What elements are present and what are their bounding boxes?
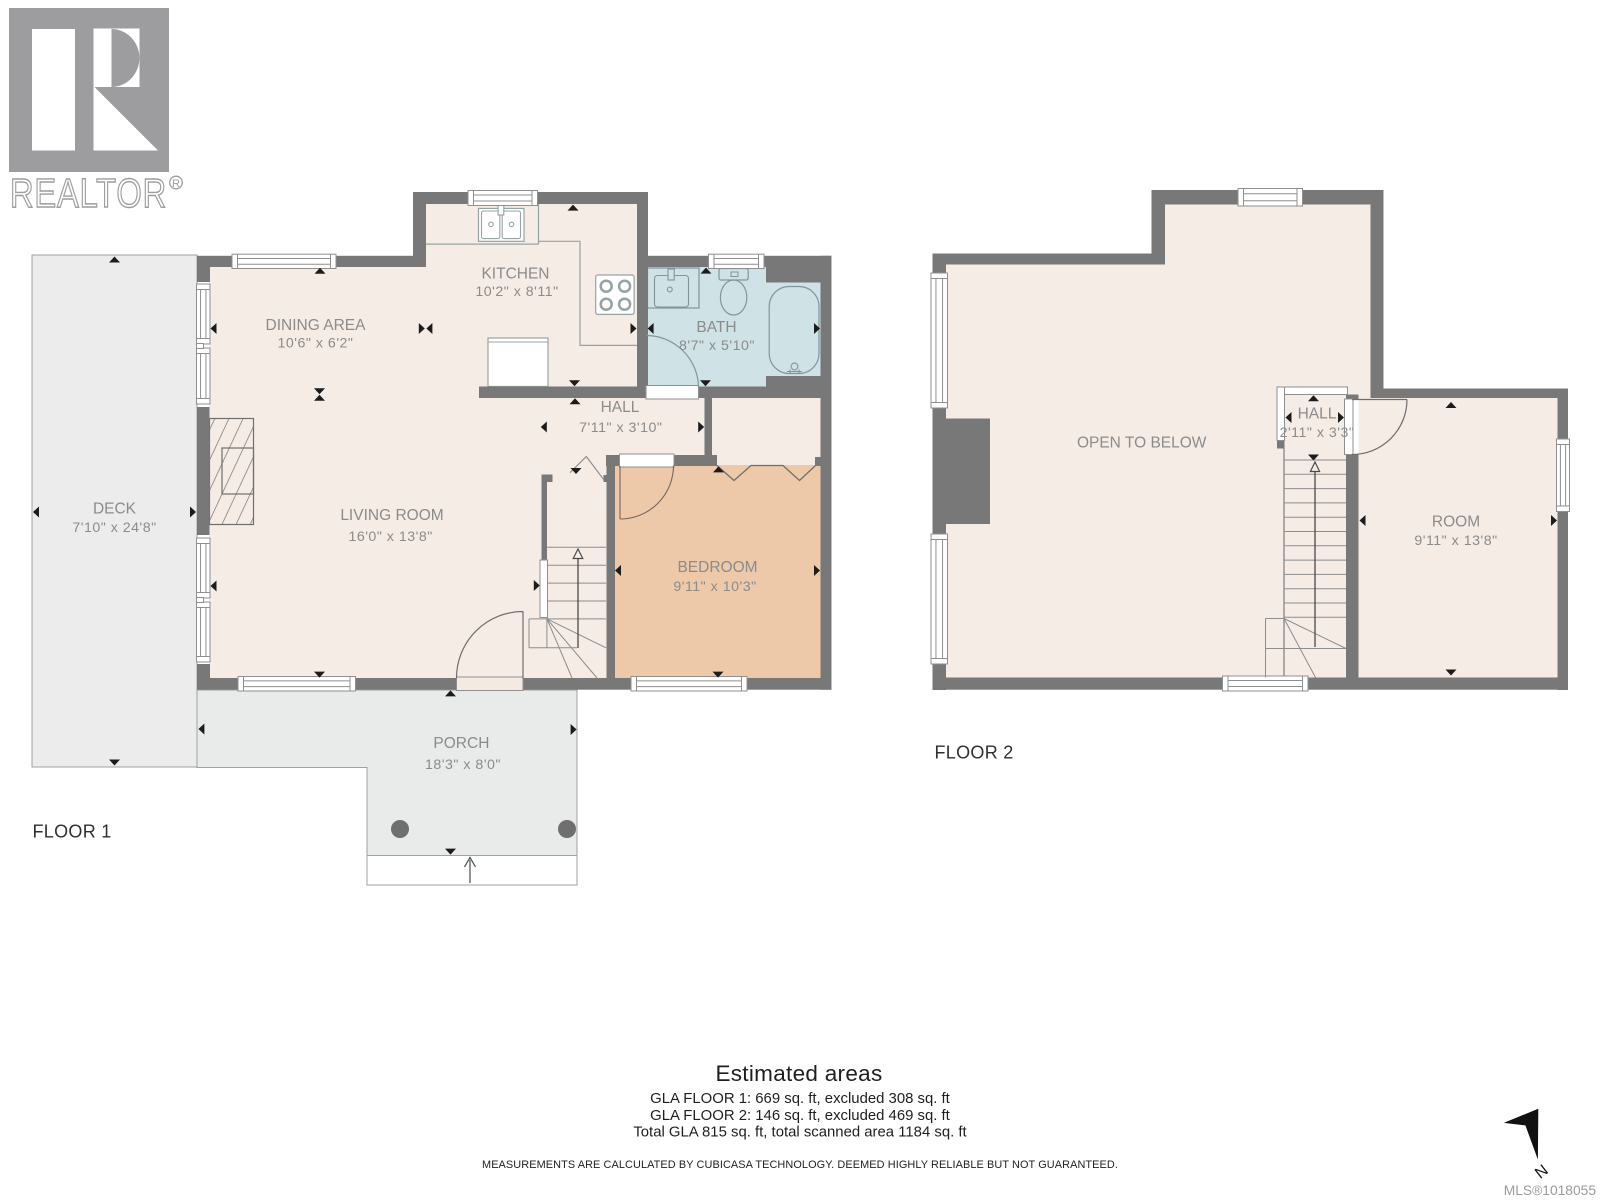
svg-text:FLOOR 1: FLOOR 1 (33, 822, 112, 842)
svg-text:16'0" x 13'8": 16'0" x 13'8" (348, 529, 432, 545)
svg-text:Total GLA 815 sq. ft, total sc: Total GLA 815 sq. ft, total scanned area… (633, 1125, 967, 1141)
svg-text:DINING AREA: DINING AREA (266, 317, 367, 334)
svg-text:10'6" x 6'2": 10'6" x 6'2" (278, 336, 354, 352)
svg-text:2'11" x 3'3": 2'11" x 3'3" (1280, 425, 1355, 441)
svg-text:LIVING ROOM: LIVING ROOM (340, 507, 443, 524)
svg-text:HALL: HALL (1298, 406, 1337, 423)
svg-text:Estimated areas: Estimated areas (715, 1061, 882, 1086)
svg-text:PORCH: PORCH (433, 735, 489, 752)
svg-text:GLA FLOOR 2: 146 sq. ft, exclu: GLA FLOOR 2: 146 sq. ft, excluded 469 sq… (650, 1108, 950, 1124)
svg-text:9'11" x 13'8": 9'11" x 13'8" (1414, 533, 1497, 549)
svg-text:OPEN TO BELOW: OPEN TO BELOW (1077, 435, 1207, 452)
svg-text:KITCHEN: KITCHEN (481, 266, 549, 283)
svg-text:HALL: HALL (601, 399, 640, 416)
svg-text:ROOM: ROOM (1432, 514, 1480, 531)
svg-text:MEASUREMENTS ARE CALCULATED BY: MEASUREMENTS ARE CALCULATED BY CUBICASA … (482, 1159, 1118, 1171)
svg-text:GLA FLOOR 1: 669 sq. ft, exclu: GLA FLOOR 1: 669 sq. ft, excluded 308 sq… (650, 1091, 950, 1107)
svg-text:FLOOR 2: FLOOR 2 (935, 743, 1014, 763)
svg-text:10'2" x 8'11": 10'2" x 8'11" (475, 284, 558, 300)
svg-text:BATH: BATH (696, 319, 736, 336)
svg-text:REALTOR: REALTOR (10, 170, 167, 216)
svg-text:18'3" x 8'0": 18'3" x 8'0" (425, 757, 501, 773)
svg-text:DECK: DECK (93, 501, 137, 518)
svg-text:MLS®1018055: MLS®1018055 (1504, 1183, 1597, 1198)
svg-text:R: R (172, 178, 180, 190)
svg-text:9'11" x 10'3": 9'11" x 10'3" (673, 579, 756, 595)
svg-text:8'7" x 5'10": 8'7" x 5'10" (679, 338, 755, 354)
svg-text:7'11" x 3'10": 7'11" x 3'10" (579, 420, 662, 436)
svg-text:7'10" x 24'8": 7'10" x 24'8" (72, 520, 156, 536)
svg-text:BEDROOM: BEDROOM (677, 559, 757, 576)
